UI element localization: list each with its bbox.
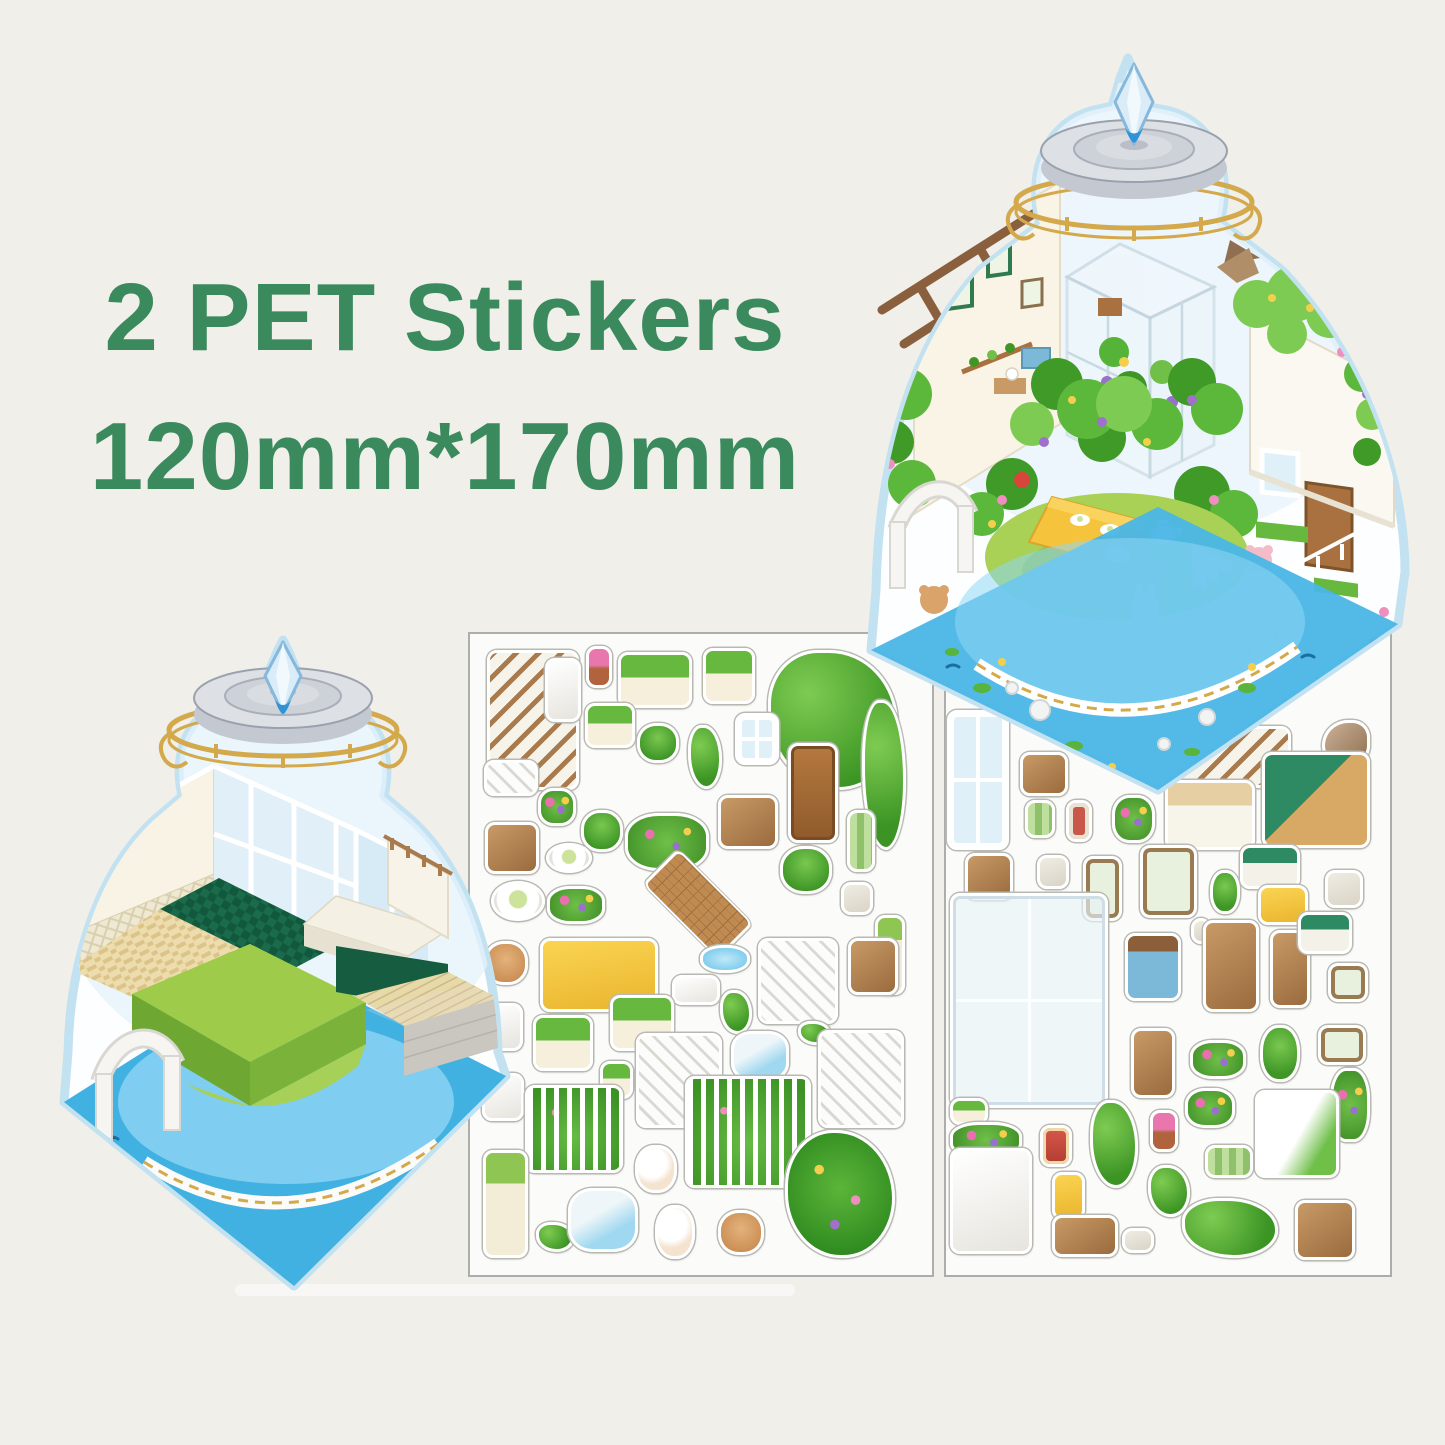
wall-ledge-sticker [1052, 1215, 1118, 1257]
white-column-sticker [545, 658, 581, 722]
purple-planter-sticker [538, 788, 576, 826]
slippers-sticker [1122, 1228, 1154, 1253]
window-box-sticker [950, 1098, 988, 1125]
gift-box-sticker [1040, 1125, 1072, 1167]
tier-shelf-sticker [950, 1148, 1032, 1254]
lattice-mat-sticker [672, 975, 720, 1005]
moss-piece-sticker [720, 990, 752, 1034]
blue-bed-sticker [1037, 855, 1069, 889]
easel-sticker [1203, 920, 1259, 1012]
planter-box-1-sticker [618, 652, 692, 708]
picnic-table-sticker [1295, 1200, 1355, 1260]
blueberry-pot-sticker [1112, 795, 1155, 843]
red-frame-sticker [1066, 800, 1092, 842]
rock-pool-sticker [731, 1031, 789, 1081]
cactus-pots-sticker [1210, 870, 1240, 914]
greenhouse-frame-sticker [950, 893, 1108, 1108]
green-stool-sticker [1025, 800, 1055, 838]
yellow-basket-sticker [1052, 1172, 1085, 1220]
wooden-door-sticker [788, 743, 838, 843]
tall-plant-sticker [688, 725, 722, 789]
potted-pair-sticker [581, 810, 623, 852]
green-bench-2-sticker [1298, 912, 1352, 954]
white-flowers-sticker [547, 886, 605, 924]
pond-piece-sticker [700, 945, 750, 973]
ivy-wall-sticker [1255, 1090, 1339, 1178]
green-rug-sticker [847, 810, 875, 872]
two-frames-sticker [1318, 1025, 1366, 1065]
vine-patch-sticker [1148, 1165, 1190, 1217]
flower-bush-large-sticker [785, 1130, 895, 1258]
white-window-sticker [735, 713, 779, 765]
potted-pink-flower-sticker [586, 646, 612, 688]
bunny-sticker [655, 1205, 695, 1259]
pink-flowers-sticker [1185, 1088, 1235, 1128]
drink-table-sticker [1325, 870, 1363, 908]
blue-cabinet-sticker [1125, 933, 1181, 1001]
teddy-bear-sticker [718, 1210, 764, 1255]
kitten-sticker [635, 1145, 677, 1193]
hanging-vine-2-sticker [1090, 1100, 1138, 1188]
stairs-vine-sticker [818, 1030, 904, 1128]
yellow-flowers-sticker [1190, 1040, 1246, 1079]
potted-yellow-sticker [1150, 1110, 1178, 1152]
planter-box-2-sticker [703, 648, 755, 704]
bottle-art-frame-sticker [1140, 845, 1197, 918]
ground-ivy-sticker [1182, 1198, 1278, 1258]
jam-jars-sticker [841, 882, 873, 915]
green-bench-sticker [1240, 845, 1300, 889]
storage-cabinet-sticker [848, 938, 898, 995]
potted-plant-bucket-sticker [637, 723, 679, 763]
food-plate-sticker [546, 843, 592, 873]
assembled-terrarium-scene [862, 52, 1445, 797]
planter-long-2-sticker [533, 1015, 593, 1071]
ladder-shelf-sticker [1131, 1028, 1175, 1098]
green-mat-2-sticker [1205, 1145, 1253, 1178]
writing-desk-sticker [718, 795, 778, 849]
planter-small-sticker [585, 703, 635, 748]
empty-terrarium-room [36, 634, 541, 1306]
product-image: 2 PET Stickers 120mm*170mm [0, 0, 1445, 1445]
potted-plant-sticker [780, 846, 832, 894]
small-frame-sticker [1328, 963, 1368, 1002]
stairs-tall-sticker [758, 938, 838, 1024]
leaf-plant-sticker [1260, 1025, 1300, 1082]
fountain-sticker [568, 1188, 638, 1252]
